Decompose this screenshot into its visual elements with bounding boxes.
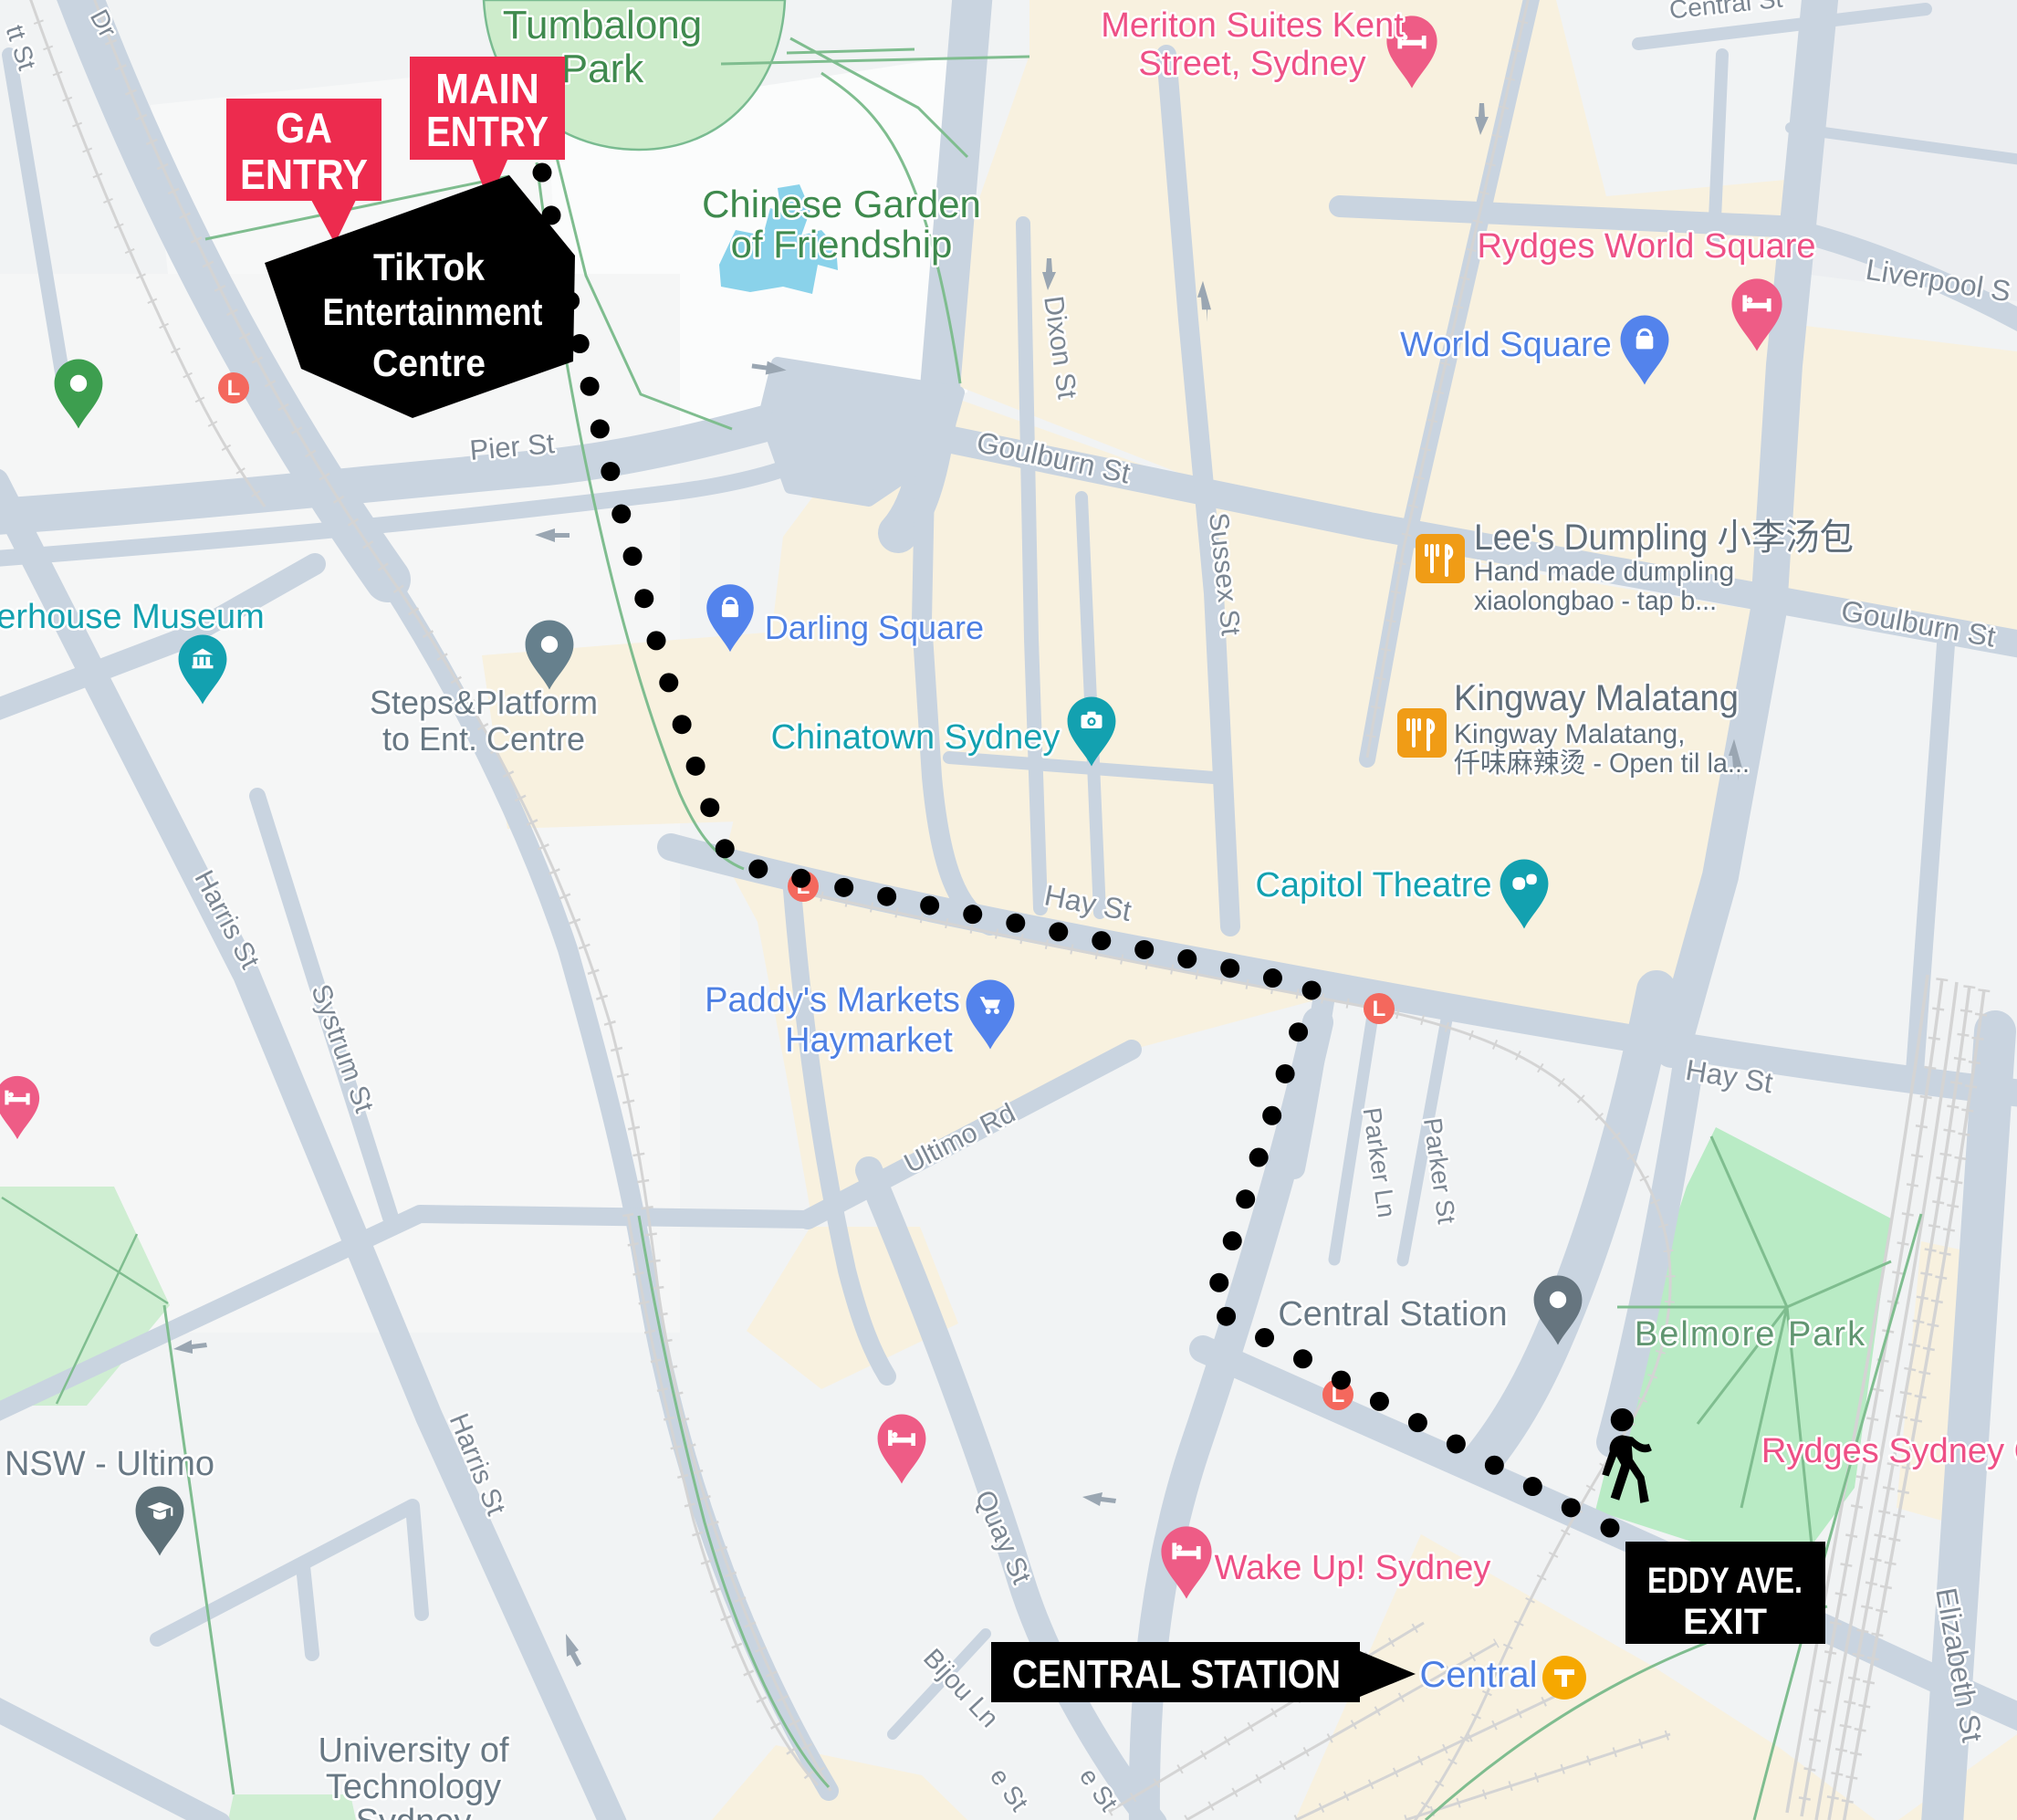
svg-text:NSW - Ultimo: NSW - Ultimo [5, 1445, 214, 1483]
svg-text:Rydges Sydney C: Rydges Sydney C [1761, 1432, 2017, 1470]
svg-text:Tumbalong: Tumbalong [503, 3, 703, 47]
svg-text:Chinatown Sydney: Chinatown Sydney [771, 718, 1061, 757]
svg-text:Haymarket: Haymarket [785, 1021, 953, 1060]
svg-text:of Friendship: of Friendship [731, 223, 953, 266]
svg-text:Darling Square: Darling Square [765, 609, 984, 646]
svg-text:GA: GA [276, 104, 332, 152]
svg-text:Entertainment: Entertainment [323, 290, 543, 333]
svg-text:L: L [1373, 997, 1386, 1021]
svg-text:Park: Park [561, 47, 644, 91]
svg-text:MAIN: MAIN [435, 65, 539, 112]
svg-text:World Square: World Square [1400, 326, 1612, 364]
svg-text:Chinese Garden: Chinese Garden [702, 183, 981, 225]
svg-text:L: L [227, 376, 241, 401]
svg-text:Paddy's Markets: Paddy's Markets [705, 981, 960, 1020]
svg-text:xiaolongbao - tap b...: xiaolongbao - tap b... [1474, 586, 1717, 616]
svg-text:Central: Central [1420, 1655, 1538, 1695]
svg-text:University of: University of [318, 1731, 508, 1770]
svg-text:Hand made dumpling: Hand made dumpling [1474, 557, 1734, 587]
svg-text:Technology: Technology [326, 1768, 501, 1806]
svg-text:Kingway Malatang,: Kingway Malatang, [1454, 719, 1685, 749]
svg-text:ENTRY: ENTRY [426, 108, 549, 155]
svg-text:Wake Up! Sydney: Wake Up! Sydney [1215, 1549, 1491, 1587]
svg-text:Sydney: Sydney [356, 1803, 472, 1820]
svg-text:EDDY AVE.: EDDY AVE. [1647, 1561, 1803, 1601]
svg-text:CENTRAL STATION: CENTRAL STATION [1012, 1652, 1341, 1697]
svg-text:EXIT: EXIT [1683, 1602, 1767, 1642]
svg-text:Meriton Suites Kent: Meriton Suites Kent [1101, 6, 1404, 45]
svg-text:to Ent. Centre: to Ent. Centre [382, 720, 585, 758]
svg-text:ENTRY: ENTRY [240, 151, 368, 198]
svg-text:Street, Sydney: Street, Sydney [1138, 45, 1365, 83]
svg-text:TikTok: TikTok [373, 246, 486, 288]
svg-text:Rydges World Square: Rydges World Square [1477, 227, 1815, 266]
svg-text:仟味麻辣烫 - Open til la...: 仟味麻辣烫 - Open til la... [1454, 748, 1750, 779]
svg-text:Lee's Dumpling 小李汤包: Lee's Dumpling 小李汤包 [1474, 518, 1854, 558]
svg-text:Kingway Malatang: Kingway Malatang [1454, 678, 1739, 718]
svg-text:Capitol Theatre: Capitol Theatre [1255, 866, 1491, 905]
svg-text:Central Station: Central Station [1278, 1295, 1507, 1334]
svg-text:erhouse Museum: erhouse Museum [0, 598, 265, 636]
svg-text:Steps&Platform: Steps&Platform [370, 684, 598, 721]
svg-text:Belmore Park: Belmore Park [1635, 1315, 1866, 1354]
svg-text:Centre: Centre [372, 341, 486, 384]
